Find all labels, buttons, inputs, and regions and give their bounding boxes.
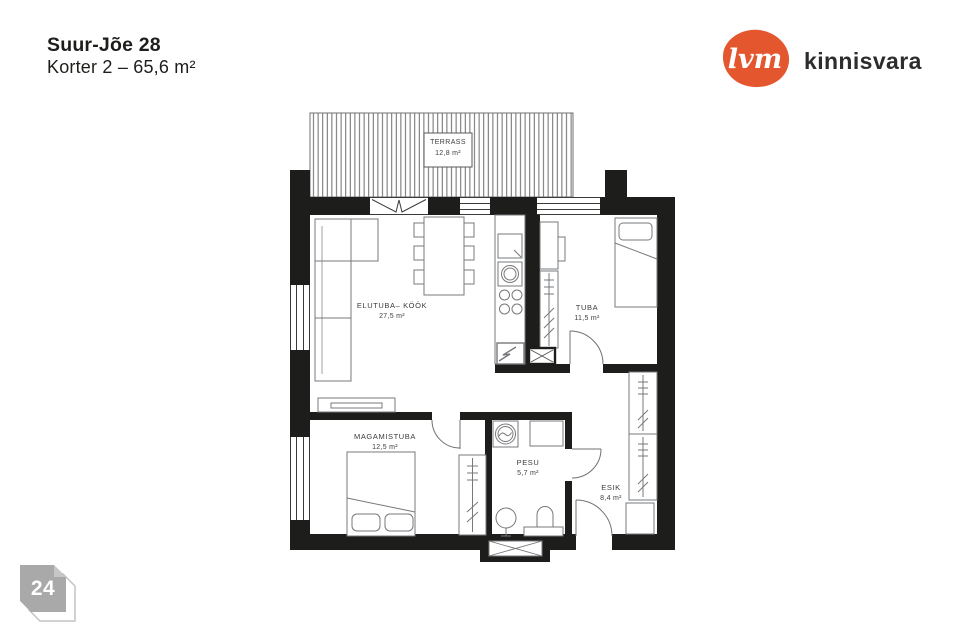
room-label-magamistuba: MAGAMISTUBA 12,5 m²	[354, 433, 416, 451]
double-bed	[347, 452, 415, 536]
pillow	[385, 514, 413, 531]
kitchen-counter	[495, 215, 525, 364]
pesu-door	[572, 449, 601, 478]
room-label-esik: ESIK 8,4 m²	[600, 484, 622, 502]
tuba-wardrobe	[540, 271, 558, 348]
duct-box	[489, 541, 542, 556]
tuba-desk	[540, 222, 565, 269]
washbasin	[496, 508, 516, 536]
tv-sideboard	[318, 398, 395, 412]
room-label-terrass: TERRASS 12,8 m²	[430, 139, 466, 157]
corner-sofa	[315, 219, 378, 381]
shower-tray	[530, 421, 563, 446]
terrace-door	[370, 197, 428, 215]
room-label-pesu: PESU 5,7 m²	[517, 459, 540, 477]
bedroom-door	[432, 420, 460, 449]
washing-machine	[493, 421, 518, 447]
ventilation-shaft	[529, 348, 555, 364]
pillow	[352, 514, 380, 531]
single-bed	[615, 218, 657, 307]
floor-plan	[0, 0, 960, 640]
tuba-door	[570, 331, 603, 364]
pillow	[619, 223, 652, 240]
room-label-elutuba-kook: ELUTUBA– KÖÖK 27,5 m²	[357, 302, 427, 320]
desk-chair	[558, 237, 565, 261]
page-number: 24	[20, 566, 66, 612]
toilet	[524, 507, 563, 537]
bedroom-wardrobe	[459, 455, 486, 535]
chimney-pier	[605, 170, 627, 197]
entrance-door	[576, 500, 612, 536]
living-room-window	[290, 285, 310, 350]
tuba-window	[537, 197, 600, 215]
bedroom-window	[290, 437, 310, 520]
kitchen-window	[460, 197, 490, 215]
room-label-tuba: TUBA 11,5 m²	[574, 304, 599, 322]
hallway-wardrobes	[629, 372, 657, 500]
entry-cabinet	[626, 503, 654, 534]
dining-table	[414, 217, 474, 295]
